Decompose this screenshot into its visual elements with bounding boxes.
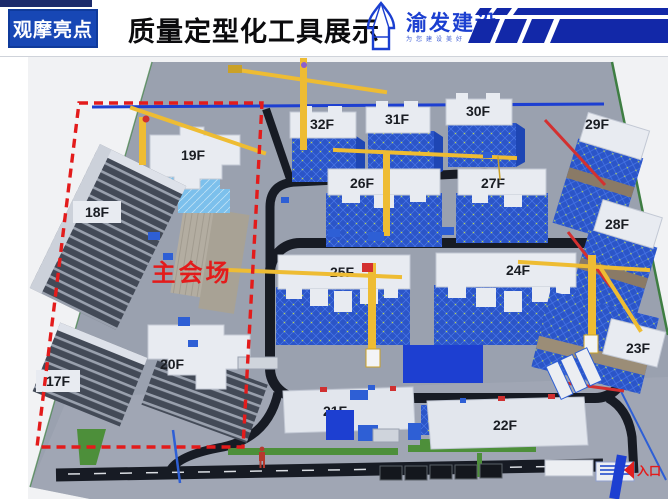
header-divider <box>0 56 668 57</box>
highlight-badge-label: 观摩亮点 <box>13 15 93 42</box>
building-label-28f: 28F <box>605 216 630 232</box>
building-label-25f: 25F <box>330 264 355 280</box>
building-label-23f: 23F <box>626 340 651 356</box>
building-27f: 27F <box>456 169 548 243</box>
building-label-30f: 30F <box>466 103 491 119</box>
main-venue-label: 主会场 <box>152 259 233 287</box>
building-label-22f: 22F <box>493 417 518 433</box>
building-22f: 22F <box>421 394 588 449</box>
building-25f: 25F <box>276 255 410 345</box>
site-plan-svg: 32F 31F 30F 29F 26F 27F <box>28 57 668 499</box>
building-label-31f: 31F <box>385 111 410 127</box>
building-label-26f: 26F <box>350 175 375 191</box>
highlight-badge: 观摩亮点 <box>8 9 98 48</box>
decor-stripes <box>468 6 668 46</box>
site-plan-image: 32F 31F 30F 29F 26F 27F <box>28 57 668 499</box>
building-label-29f: 29F <box>585 116 610 132</box>
building-label-20f: 20F <box>160 356 185 372</box>
building-label-19f: 19F <box>181 147 206 163</box>
entrance-label: 入口 <box>637 464 661 478</box>
corner-accent-bar <box>0 0 92 7</box>
building-label-27f: 27F <box>481 175 506 191</box>
slide-header: 观摩亮点 质量定型化工具展示 渝发建设 为您建设美好 <box>0 0 668 57</box>
building-label-18f: 18F <box>85 204 110 220</box>
building-label-17f: 17F <box>46 373 71 389</box>
building-label-32f: 32F <box>310 116 335 132</box>
tower-logo-icon <box>360 1 402 55</box>
page-title: 质量定型化工具展示 <box>128 10 380 49</box>
